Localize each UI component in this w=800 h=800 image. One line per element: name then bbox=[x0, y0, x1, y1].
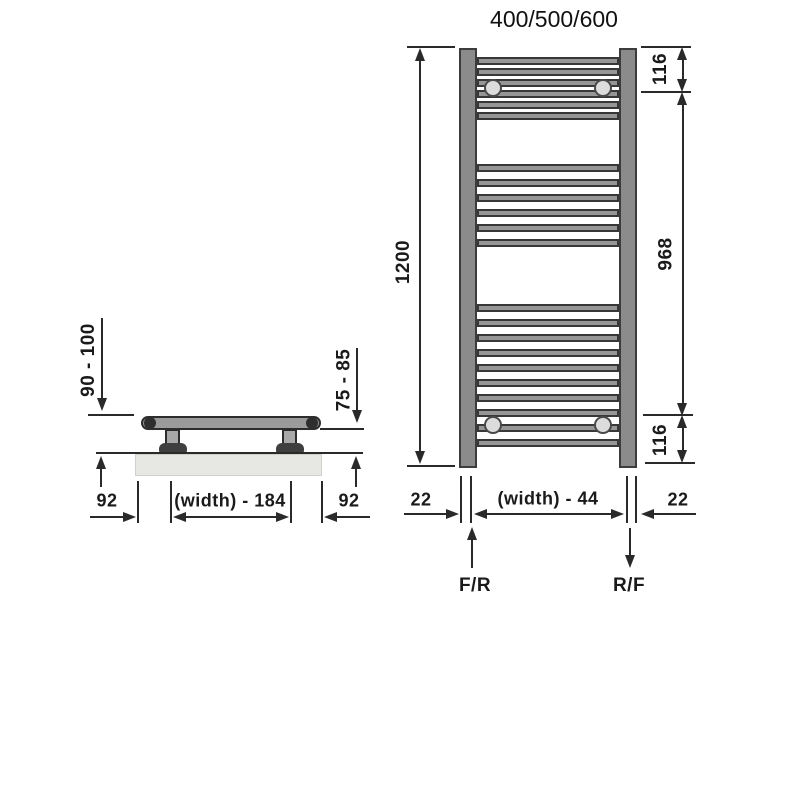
wall-bracket-circle bbox=[594, 79, 612, 97]
wall-bracket-circle bbox=[594, 416, 612, 434]
dim-label-width-44: (width) - 44 bbox=[498, 489, 599, 510]
radiator-rung bbox=[477, 209, 619, 217]
radiator-rung bbox=[477, 334, 619, 342]
arrow-left-icon bbox=[641, 509, 654, 519]
dim-label-1200: 1200 bbox=[354, 212, 454, 312]
technical-drawing: 400/500/600 1200 116 968 bbox=[0, 0, 800, 800]
dim-label-92-right: 92 bbox=[338, 491, 359, 512]
radiator-rung bbox=[477, 164, 619, 172]
flow-in-line bbox=[471, 538, 473, 568]
dim-line-width-184 bbox=[185, 516, 277, 518]
dim-tick bbox=[460, 476, 462, 523]
wall-pointer-line bbox=[100, 468, 102, 487]
arrow-right-icon bbox=[446, 509, 459, 519]
dim-tick bbox=[170, 481, 172, 523]
arrow-right-icon bbox=[276, 512, 289, 522]
arrow-down-icon bbox=[415, 451, 425, 464]
arrow-up-icon bbox=[415, 48, 425, 61]
wall-pointer-line bbox=[355, 468, 357, 487]
left-vertical-tube bbox=[459, 48, 477, 468]
dim-label-92-left: 92 bbox=[96, 491, 117, 512]
radiator-rung bbox=[477, 112, 619, 120]
rail-end-cap bbox=[306, 417, 318, 429]
arrow-left-icon bbox=[474, 509, 487, 519]
dim-tick bbox=[470, 476, 472, 523]
dim-label-116-top: 116 bbox=[611, 19, 711, 119]
dim-tick bbox=[321, 481, 323, 523]
dim-label-75-85: 75 - 85 bbox=[294, 330, 394, 430]
dim-label-22-left: 22 bbox=[410, 490, 431, 511]
dim-tick bbox=[137, 481, 139, 523]
towel-rail-profile bbox=[141, 416, 321, 430]
dim-line-92-right bbox=[336, 516, 370, 518]
flow-out-line bbox=[629, 528, 631, 558]
arrow-left-icon bbox=[173, 512, 186, 522]
arrow-up-icon bbox=[677, 92, 687, 105]
rail-end-cap bbox=[144, 417, 156, 429]
wall-section bbox=[135, 454, 322, 476]
wall-bracket-circle bbox=[484, 79, 502, 97]
dim-line-22-left bbox=[404, 513, 448, 515]
radiator-rung bbox=[477, 409, 619, 417]
dim-line-width-44 bbox=[486, 513, 612, 515]
radiator-rung bbox=[477, 224, 619, 232]
dim-label-116-bottom: 116 bbox=[611, 390, 711, 490]
dim-tick bbox=[407, 465, 455, 467]
dim-label-90-100: 90 - 100 bbox=[39, 310, 139, 410]
radiator-rung bbox=[477, 179, 619, 187]
radiator-rung bbox=[477, 364, 619, 372]
arrow-down-icon bbox=[625, 555, 635, 568]
dim-line-22-right bbox=[652, 513, 696, 515]
flow-out-label: R/F bbox=[613, 575, 645, 597]
radiator-rung bbox=[477, 394, 619, 402]
dim-label-width-184: (width) - 184 bbox=[174, 491, 286, 512]
radiator-rung bbox=[477, 304, 619, 312]
rung-layer bbox=[477, 0, 619, 480]
dim-tick bbox=[88, 414, 134, 416]
arrow-up-icon bbox=[467, 527, 477, 540]
dim-label-22-right: 22 bbox=[667, 490, 688, 511]
radiator-rung bbox=[477, 101, 619, 109]
dim-tick bbox=[290, 481, 292, 523]
flow-in-label: F/R bbox=[459, 575, 491, 597]
radiator-rung bbox=[477, 68, 619, 76]
dim-tick bbox=[635, 476, 637, 523]
radiator-rung bbox=[477, 239, 619, 247]
radiator-rung bbox=[477, 379, 619, 387]
radiator-rung bbox=[477, 439, 619, 447]
dim-line-92-left bbox=[90, 516, 124, 518]
wall-bracket-circle bbox=[484, 416, 502, 434]
arrow-right-icon bbox=[611, 509, 624, 519]
radiator-rung bbox=[477, 319, 619, 327]
arrow-right-icon bbox=[123, 512, 136, 522]
radiator-rung bbox=[477, 57, 619, 65]
dim-label-968: 968 bbox=[617, 204, 717, 304]
dim-tick bbox=[626, 476, 628, 523]
arrow-left-icon bbox=[324, 512, 337, 522]
radiator-rung bbox=[477, 349, 619, 357]
radiator-rung bbox=[477, 194, 619, 202]
